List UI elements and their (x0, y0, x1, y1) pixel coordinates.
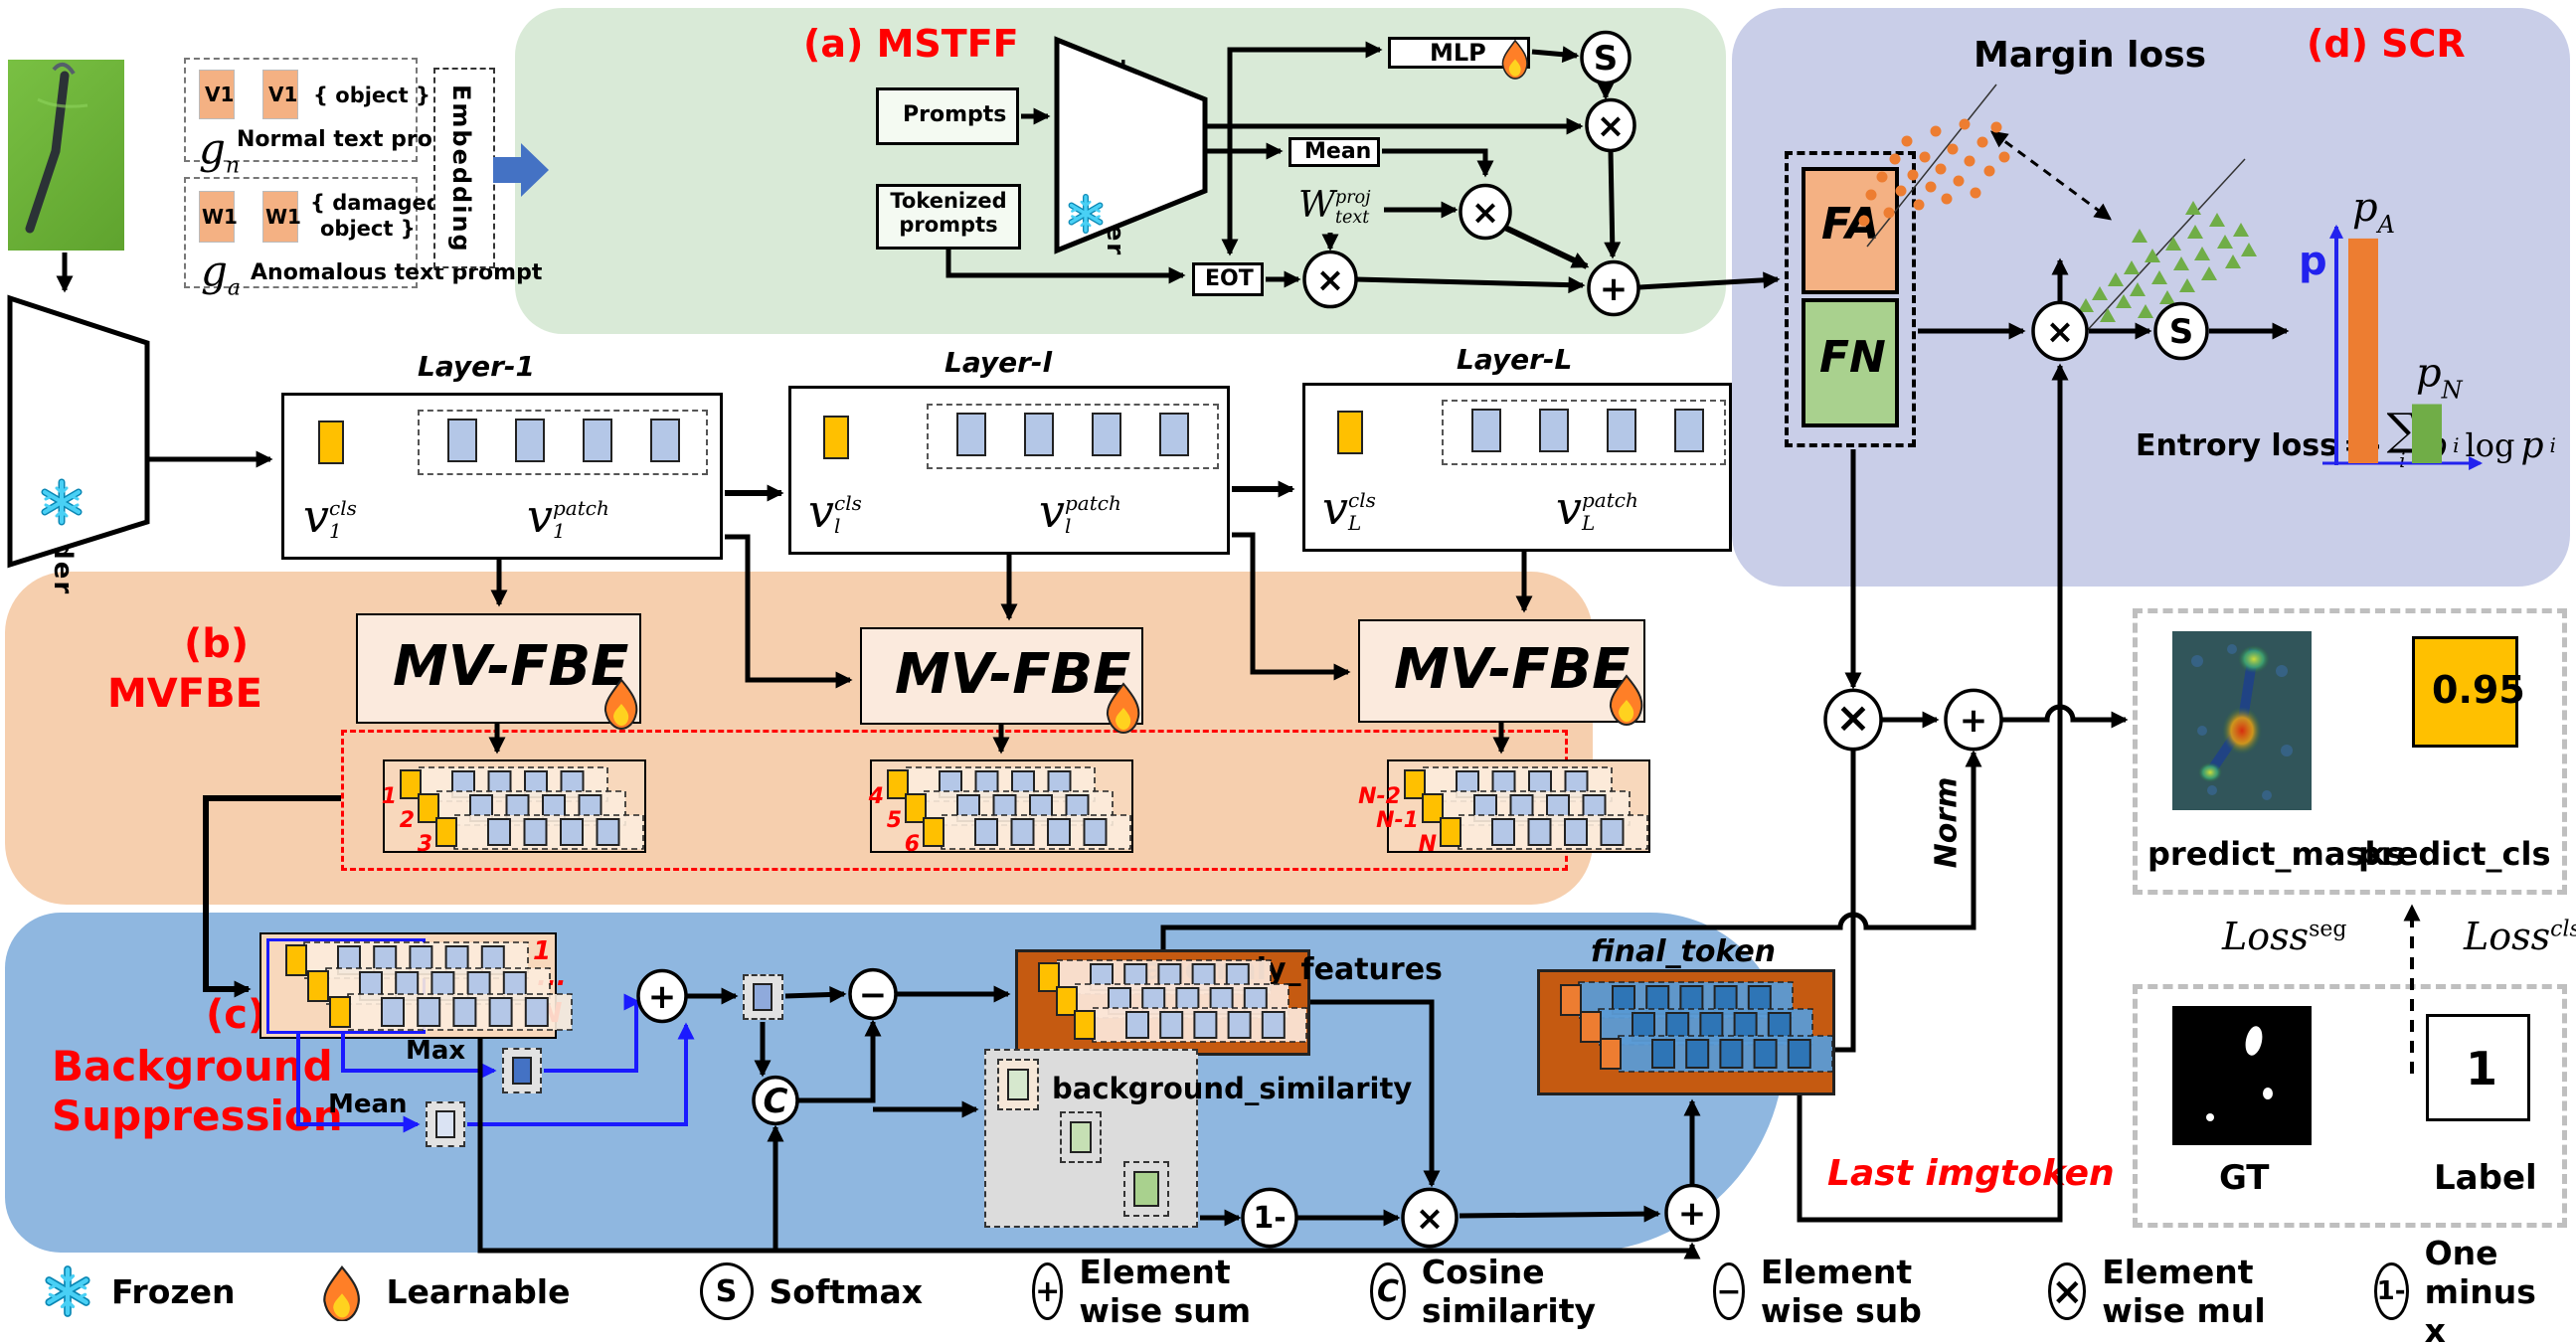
margin-loss-label: Margin loss (1974, 35, 2206, 76)
cls-token (318, 420, 344, 464)
tag-scr: (d) SCR (2307, 22, 2466, 66)
patch-token (1471, 409, 1501, 452)
object-placeholder: { object } (313, 84, 430, 107)
mean-label: Mean (1304, 139, 1371, 164)
mul-op-icon: × (1825, 690, 1881, 749)
cls-token (1337, 411, 1363, 454)
bg-token-3 (1133, 1171, 1159, 1207)
legend-label: Element wise sum (1079, 1253, 1256, 1330)
legend-label: One minus x (2425, 1234, 2555, 1344)
predict-cls-score: 0.95 (2432, 668, 2525, 712)
bg-token-1 (1007, 1069, 1029, 1100)
tokenized-prompts-label: Tokenized prompts (888, 189, 1009, 237)
cosine-op-icon: C (1370, 1262, 1406, 1320)
legend-label: Element wise sub (1761, 1253, 1935, 1330)
patch-token (1539, 409, 1569, 452)
mvfbe-box-2-label: MV-FBE (895, 642, 1130, 707)
patch-token (1024, 413, 1054, 456)
patch-token (1092, 413, 1121, 456)
mvfbe-box-3-label: MV-FBE (1394, 637, 1630, 702)
g-n-symbol: gn (199, 124, 240, 178)
label-label: Label (2434, 1158, 2537, 1198)
loss-seg-label: Lossseg (2222, 915, 2347, 958)
one-minus-op-icon: 1- (2374, 1262, 2409, 1320)
patch-token (1674, 409, 1704, 452)
eot-label: EOT (1205, 266, 1254, 291)
tag-bs-suppression: Suppression (52, 1092, 343, 1140)
bs-stack-dots: ... (537, 962, 567, 992)
predict-mask-image (2172, 631, 2312, 810)
patch-token (515, 419, 545, 462)
legend-item: Learnable (314, 1261, 570, 1321)
mean-token (435, 1110, 455, 1138)
svg-text:+: + (1960, 701, 1988, 741)
patch-token (1607, 409, 1636, 452)
max-label: Max (406, 1036, 465, 1066)
anomalous-prompt-label: Anomalous text prompt (251, 260, 542, 285)
legend-item: Frozen (40, 1261, 235, 1321)
svg-text:×: × (1835, 693, 1870, 742)
anomaly-features-label: anomaly_features (1143, 952, 1443, 987)
tag-mstff: (a) MSTFF (803, 22, 1019, 66)
vl-cls-label: vclsl (808, 484, 862, 538)
gt-image (2172, 1006, 2312, 1145)
prompt-token-v1-a-label: V1 (205, 83, 234, 106)
prompt-token-w1-b-label: W1 (265, 205, 301, 229)
fa-label: FA (1821, 199, 1879, 250)
gt-label: GT (2219, 1158, 2270, 1198)
mul-op-icon: × (2048, 1262, 2086, 1320)
sum-op-icon: + (1946, 690, 2001, 749)
hanger-shape (8, 60, 124, 251)
tag-bs-c: (c) (206, 992, 265, 1038)
damaged-placeholder-1: { damaged (310, 191, 441, 215)
token-stack-1 (383, 759, 646, 853)
mean-label: Mean (328, 1090, 408, 1119)
snowflake-icon (40, 1261, 95, 1321)
cls-token (823, 416, 849, 459)
label-value: 1 (2466, 1042, 2497, 1095)
final-token-box (1537, 969, 1835, 1095)
damaged-placeholder-2: object } (320, 217, 416, 241)
prompt-token-v1-b-label: V1 (268, 83, 297, 106)
sum-token (753, 983, 773, 1011)
bs-stack-label-n: N (539, 996, 562, 1029)
tag-mvfbe-b: (b) (184, 621, 249, 667)
flame-icon (314, 1261, 370, 1321)
token-stack-3 (1387, 759, 1650, 853)
patch-token (650, 419, 680, 462)
fn-label: FN (1819, 332, 1886, 383)
prompt-token-w1-a-label: W1 (202, 205, 238, 229)
final-token-label: final_token (1591, 934, 1776, 969)
patch-token (583, 419, 612, 462)
embedding-label: Embedding (447, 80, 475, 258)
legend-item: −Element wise sub (1713, 1253, 1934, 1330)
token-stack-2 (870, 759, 1133, 853)
image-encoder-label: Image Encoder (48, 353, 78, 512)
text-encoder-label: Text Encoder (1102, 60, 1129, 199)
layer1-title: Layer-1 (418, 350, 535, 383)
tag-bs-background: Background (52, 1042, 333, 1091)
v1-patch-label: vpatch1 (527, 489, 609, 543)
g-a-symbol: ga (201, 247, 241, 300)
mlp-label: MLP (1430, 39, 1486, 67)
max-token (512, 1057, 532, 1085)
layerL-title: Layer-L (1457, 343, 1572, 376)
legend-item: SSoftmax (700, 1262, 924, 1320)
last-imgtoken-label: Last imgtoken (1827, 1153, 2115, 1194)
vl-patch-label: vpatchl (1039, 484, 1121, 538)
softmax-op-icon: S (700, 1262, 754, 1320)
tag-mvfbe: MVFBE (107, 671, 262, 717)
wire-final-to-big-mul (1835, 697, 1853, 1050)
predict-cls-label: predict_cls (2358, 835, 2551, 873)
legend-label: Softmax (770, 1272, 924, 1311)
vL-patch-label: vpatchL (1556, 481, 1638, 535)
patch-token (1159, 413, 1189, 456)
legend-bar: FrozenLearnableSSoftmax+Element wise sum… (40, 1259, 2555, 1324)
image-encoder (10, 298, 147, 565)
sub-op-icon: − (1713, 1262, 1745, 1320)
loss-cls-label: Losscls (2464, 915, 2576, 958)
legend-label: Frozen (111, 1272, 235, 1311)
bg-token-2 (1070, 1121, 1092, 1153)
prompts-box-label: Prompts (903, 102, 1006, 127)
legend-label: Learnable (386, 1272, 570, 1311)
bs-selection-rect (266, 938, 426, 1034)
legend-label: Cosine similarity (1422, 1253, 1614, 1330)
layerl-title: Layer-l (945, 346, 1052, 379)
vL-cls-label: vclsL (1322, 481, 1376, 535)
figure-canvas: (a) MSTFF (d) SCR (b) MVFBE (c) Backgrou… (0, 0, 2576, 1344)
legend-item: CCosine similarity (1370, 1253, 1614, 1330)
arrow-sum-to-predict (2002, 707, 2126, 720)
legend-item: 1-One minus x (2374, 1234, 2555, 1344)
background-similarity-label: background_similarity (1052, 1072, 1412, 1105)
patch-token (956, 413, 986, 456)
mvfbe-box-1-label: MV-FBE (393, 634, 628, 699)
input-image (8, 60, 124, 251)
w-text-proj-symbol: Wprojtext (1298, 185, 1371, 228)
legend-item: +Element wise sum (1032, 1253, 1256, 1330)
sum-op-icon: + (1032, 1262, 1063, 1320)
patch-token (447, 419, 477, 462)
norm-label: Norm (1929, 777, 1964, 869)
legend-label: Element wise mul (2102, 1253, 2269, 1330)
entropy-loss-formula: Entrory loss =- ∑ i pi log pi (2136, 416, 2556, 475)
legend-item: ×Element wise mul (2048, 1253, 2269, 1330)
v1-cls-label: vcls1 (303, 489, 357, 543)
